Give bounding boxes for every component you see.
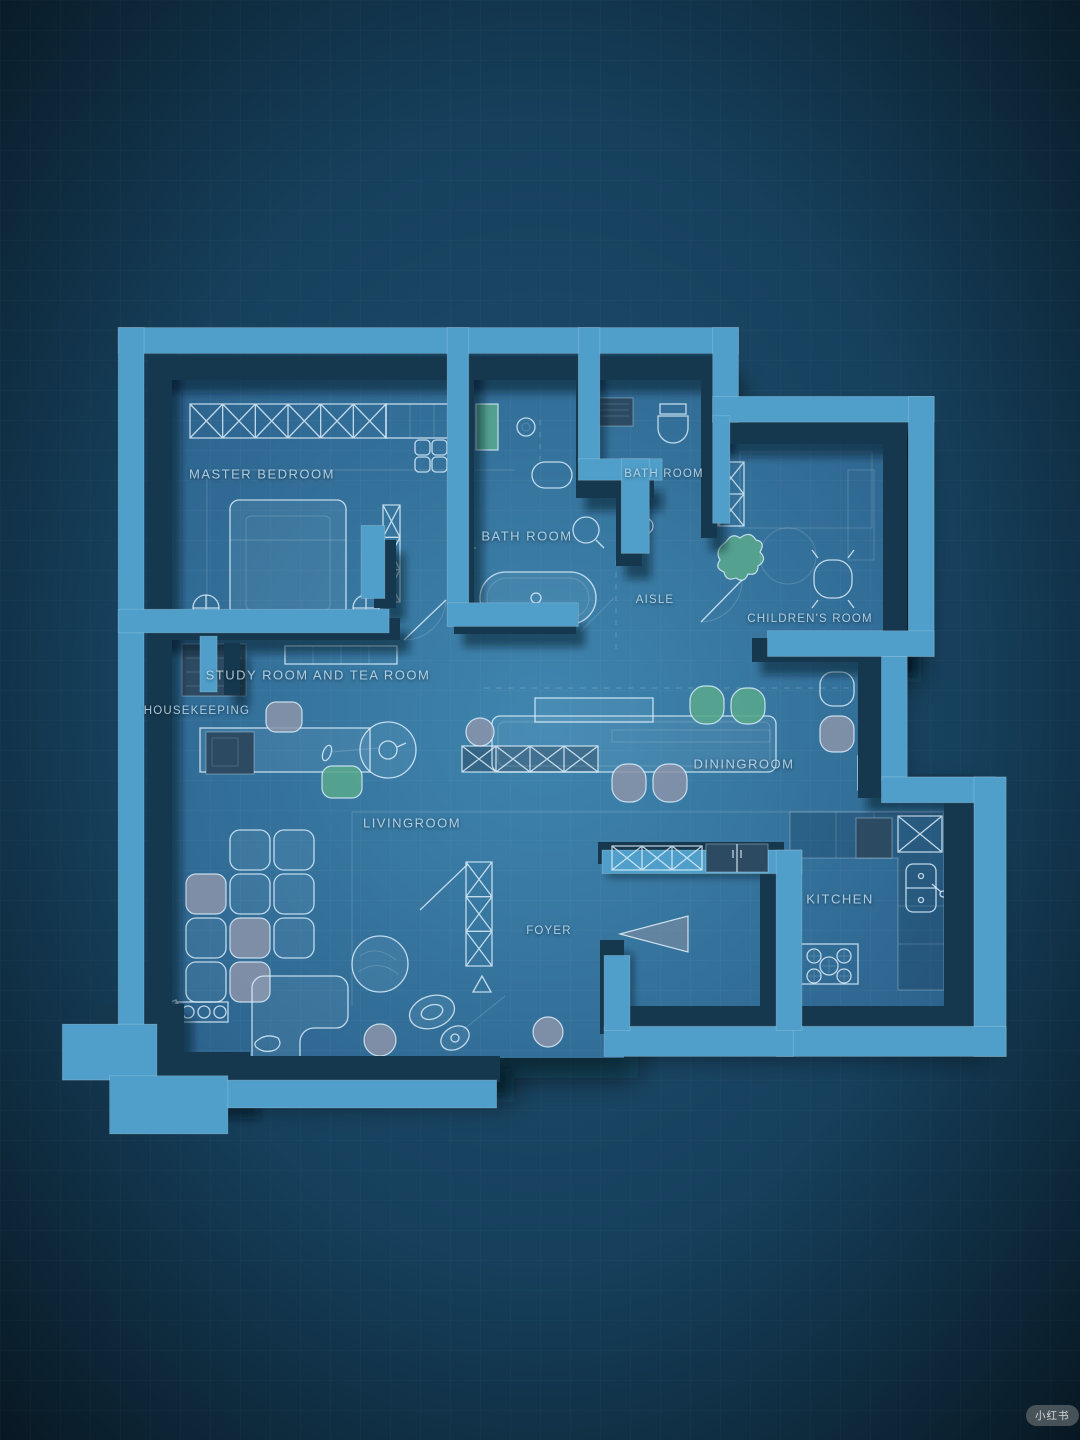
- stool: [364, 1024, 396, 1056]
- room-label-aisle: AISLE: [636, 594, 675, 606]
- wall-base: [701, 420, 907, 444]
- room-label-living: LIVINGROOM: [363, 816, 461, 831]
- room-label-foyer: FOYER: [526, 925, 572, 937]
- wall-base: [944, 774, 974, 1034]
- wall-top: [578, 328, 600, 461]
- wall-top: [881, 657, 907, 782]
- stool-dark: [533, 1017, 563, 1047]
- chair-gray: [266, 702, 302, 732]
- chair-green-1: [690, 686, 724, 724]
- coffee-table: [352, 936, 408, 992]
- wall-top: [776, 850, 802, 1031]
- bed: [230, 500, 346, 626]
- bench: [535, 698, 653, 722]
- dining-stool: [466, 718, 494, 746]
- wall-top: [447, 603, 578, 627]
- floorplan-canvas: MASTER BEDROOM BATH ROOM BATH ROOM AISLE…: [0, 0, 1080, 1440]
- room-label-kitchen: KITCHEN: [806, 892, 874, 907]
- wall-top: [604, 1026, 793, 1056]
- tea-table-round-end: [360, 722, 416, 778]
- room-label-dining: DININGROOM: [694, 757, 795, 772]
- wall-top: [200, 636, 217, 692]
- wall-top: [62, 1024, 157, 1080]
- room-label-housekeeping: HOUSEKEEPING: [144, 705, 250, 717]
- wall-top: [118, 328, 144, 1029]
- chair-gray-2: [653, 764, 687, 802]
- wall-top: [776, 1026, 1006, 1056]
- hood-unit: [856, 818, 892, 858]
- room-label-childrens-room: CHILDREN'S ROOM: [747, 613, 873, 625]
- chair-green: [322, 766, 362, 798]
- wall-base: [148, 356, 172, 1008]
- wall-top: [118, 328, 738, 354]
- room-label-bath-second: BATH ROOM: [624, 468, 704, 480]
- wall-top: [974, 777, 1006, 1057]
- wall-base: [858, 662, 882, 778]
- floorplan-svg: [0, 0, 1080, 1440]
- wall-base: [148, 356, 725, 380]
- room-label-study-tea: STUDY ROOM AND TEA ROOM: [206, 668, 431, 683]
- wall-top: [768, 631, 935, 657]
- chair-gray-1: [612, 764, 646, 802]
- wall-top: [713, 396, 934, 422]
- wall-base: [883, 420, 907, 662]
- wall-top: [908, 396, 934, 656]
- wall-top: [110, 1076, 228, 1134]
- room-label-bath-main: BATH ROOM: [481, 529, 572, 544]
- wall-top: [713, 416, 730, 523]
- wall-top: [118, 609, 389, 633]
- wall-chair-gray: [820, 716, 854, 752]
- chair-green-2: [731, 688, 765, 724]
- watermark-badge: 小红书: [1026, 1405, 1079, 1426]
- wall-top: [447, 328, 469, 605]
- wall-top: [604, 955, 630, 1030]
- room-label-master-bedroom: MASTER BEDROOM: [189, 467, 335, 482]
- wall-top: [361, 525, 385, 598]
